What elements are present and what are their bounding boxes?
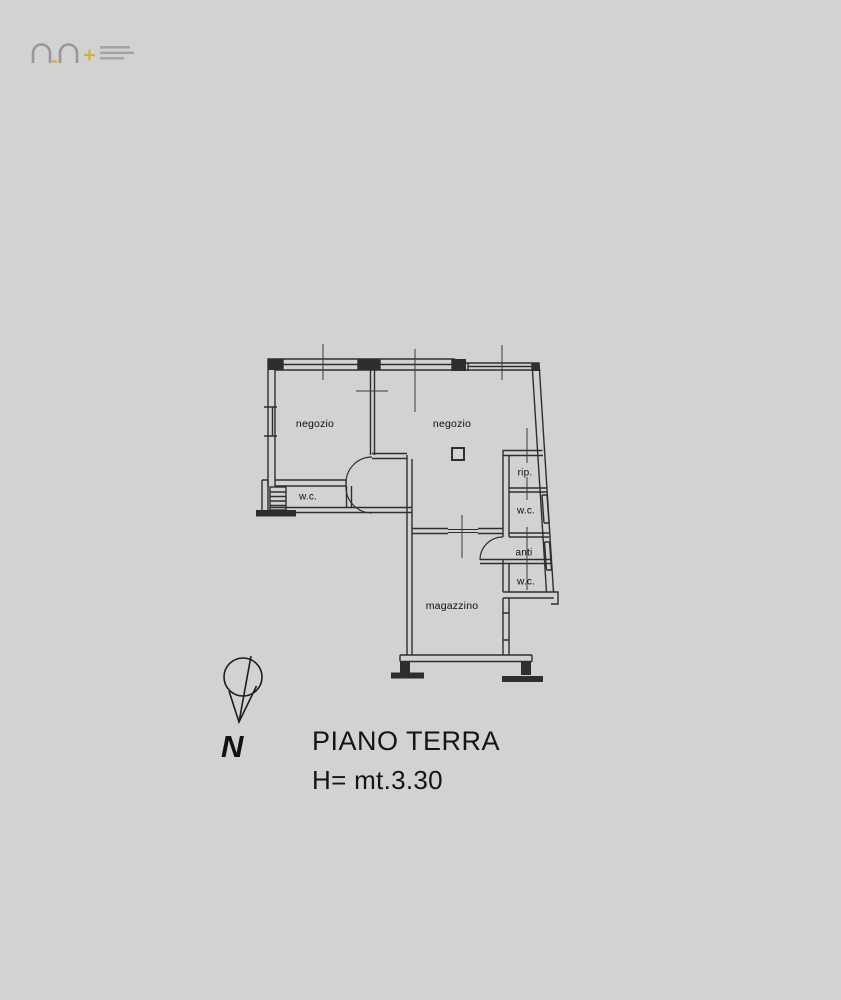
room-label-wc-left: w.c. xyxy=(299,492,317,503)
floor-plan-drawing xyxy=(0,0,841,1000)
logo-text-lines xyxy=(100,46,134,60)
left-entry-door-stripes xyxy=(270,492,286,506)
slant-window-2 xyxy=(545,542,552,570)
north-arrow xyxy=(224,656,262,722)
room-label-wc-right-upper: w.c. xyxy=(517,506,535,517)
negozio-divider-wall xyxy=(371,370,375,455)
service-rooms-inner-wall xyxy=(503,450,509,655)
rip-wc-divider xyxy=(509,488,547,492)
left-entry-door xyxy=(270,487,286,510)
logo-arch-1 xyxy=(33,45,50,63)
vestibule-door-arc-upper xyxy=(346,457,372,483)
outer-wall-line xyxy=(268,359,554,592)
floor-title: PIANO TERRA xyxy=(312,726,500,757)
magazzino-bottom-wall xyxy=(400,655,532,662)
wc-lower-bottom-wall xyxy=(503,592,558,604)
inner-wall-line xyxy=(275,370,547,592)
north-label: N xyxy=(221,729,243,765)
room-label-rip: rip. xyxy=(518,468,533,479)
room-label-anti: anti xyxy=(516,548,533,559)
north-arrow-needle xyxy=(239,656,251,722)
slant-window-1 xyxy=(542,495,549,523)
vestibule-wall xyxy=(372,454,407,459)
agency-logo xyxy=(33,45,134,64)
anti-door-arc xyxy=(480,537,503,560)
room-label-magazzino: magazzino xyxy=(426,600,479,612)
room-label-negozio-right: negozio xyxy=(433,418,471,430)
north-arrow-circle xyxy=(224,658,262,696)
floor-plan-walls xyxy=(256,344,558,682)
magazzino-door-threshold xyxy=(448,530,478,533)
dimension-ticks xyxy=(323,344,527,590)
solid-wall-chunks xyxy=(256,359,543,682)
logo-arch-2 xyxy=(60,45,77,64)
negozio-left-bottom-wall xyxy=(275,480,346,486)
room-label-wc-right-lower: w.c. xyxy=(517,577,535,588)
left-entry-wall xyxy=(262,480,268,510)
room-label-negozio-left: negozio xyxy=(296,418,334,430)
anti-wc-divider xyxy=(480,560,551,564)
column-pillar xyxy=(452,448,464,460)
wc-left-wall xyxy=(347,486,352,508)
magazzino-left-wall xyxy=(407,455,412,655)
vestibule-door-arc-lower xyxy=(346,487,372,513)
scanned-floor-plan-page: negozio negozio w.c. rip. w.c. anti w.c.… xyxy=(0,0,841,1000)
height-note: H= mt.3.30 xyxy=(312,765,443,796)
storefront-glazing xyxy=(283,365,532,367)
logo-plus-icon xyxy=(84,50,95,61)
